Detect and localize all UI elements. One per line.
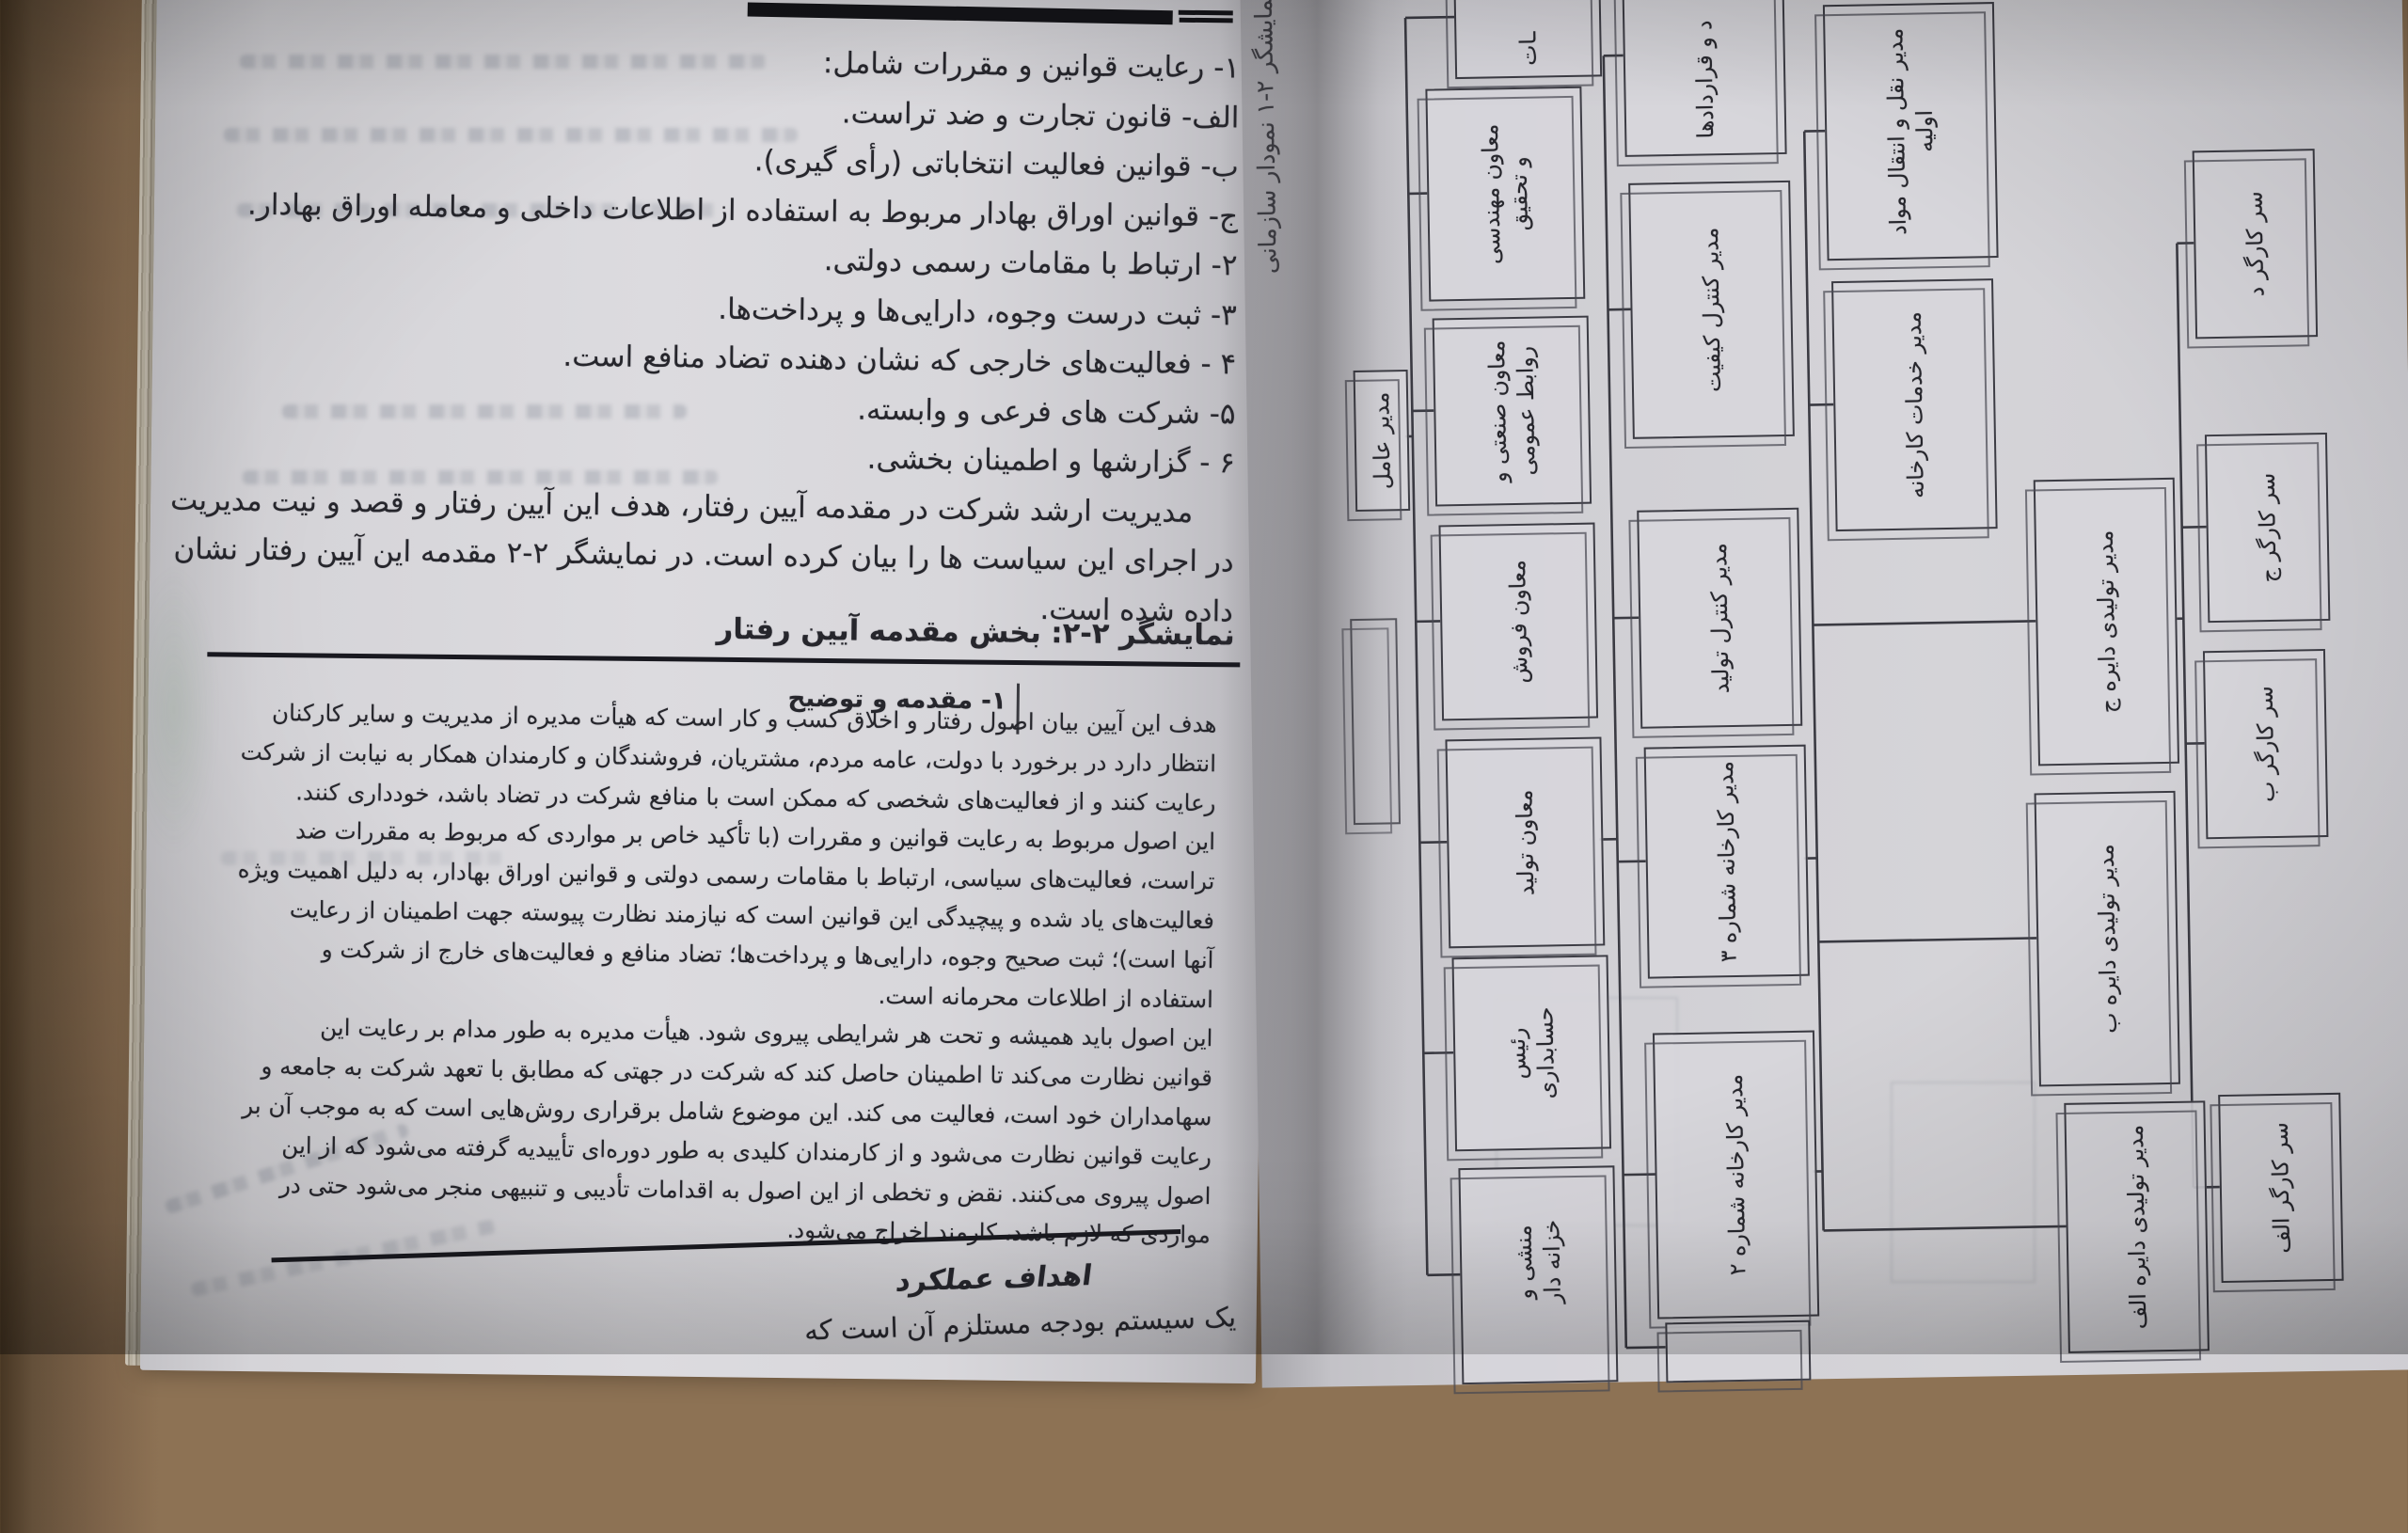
org-box-factory-2-manager: مدیر کارخانه شماره ۲ (1653, 1031, 1819, 1320)
org-box-division-b-manager: مدیر تولیدی دایره ب (2035, 791, 2180, 1087)
org-chart: مدیر عامل ـات معاون مهندسی و تحقیق معاون… (0, 0, 2408, 1385)
org-box-foreman-a: سر کارگر الف (2218, 1093, 2343, 1283)
org-box-partial-bottom (1665, 1320, 1811, 1383)
book-photo: { "left_page": { "list_lines": [ "۱- رعا… (0, 0, 2408, 1354)
org-box-ceo: مدیر عامل (1354, 370, 1411, 512)
org-box-secretary-treasurer: منشی و خزانه دار (1458, 1165, 1618, 1384)
org-box-empty (1350, 618, 1401, 825)
org-box-foreman-b: سر کارگر ب (2203, 649, 2328, 839)
org-box-division-a-manager: مدیر تولیدی دایره الف (2064, 1100, 2210, 1353)
exhibit-2-1-caption: نمایشگر ۲-۱ نمودار سازمانی (1250, 0, 1283, 324)
org-box-factory-services-manager: مدیر خدمات کارخانه (1831, 278, 1998, 531)
org-box-label: منشی و خزانه دار (1506, 1018, 1571, 1508)
